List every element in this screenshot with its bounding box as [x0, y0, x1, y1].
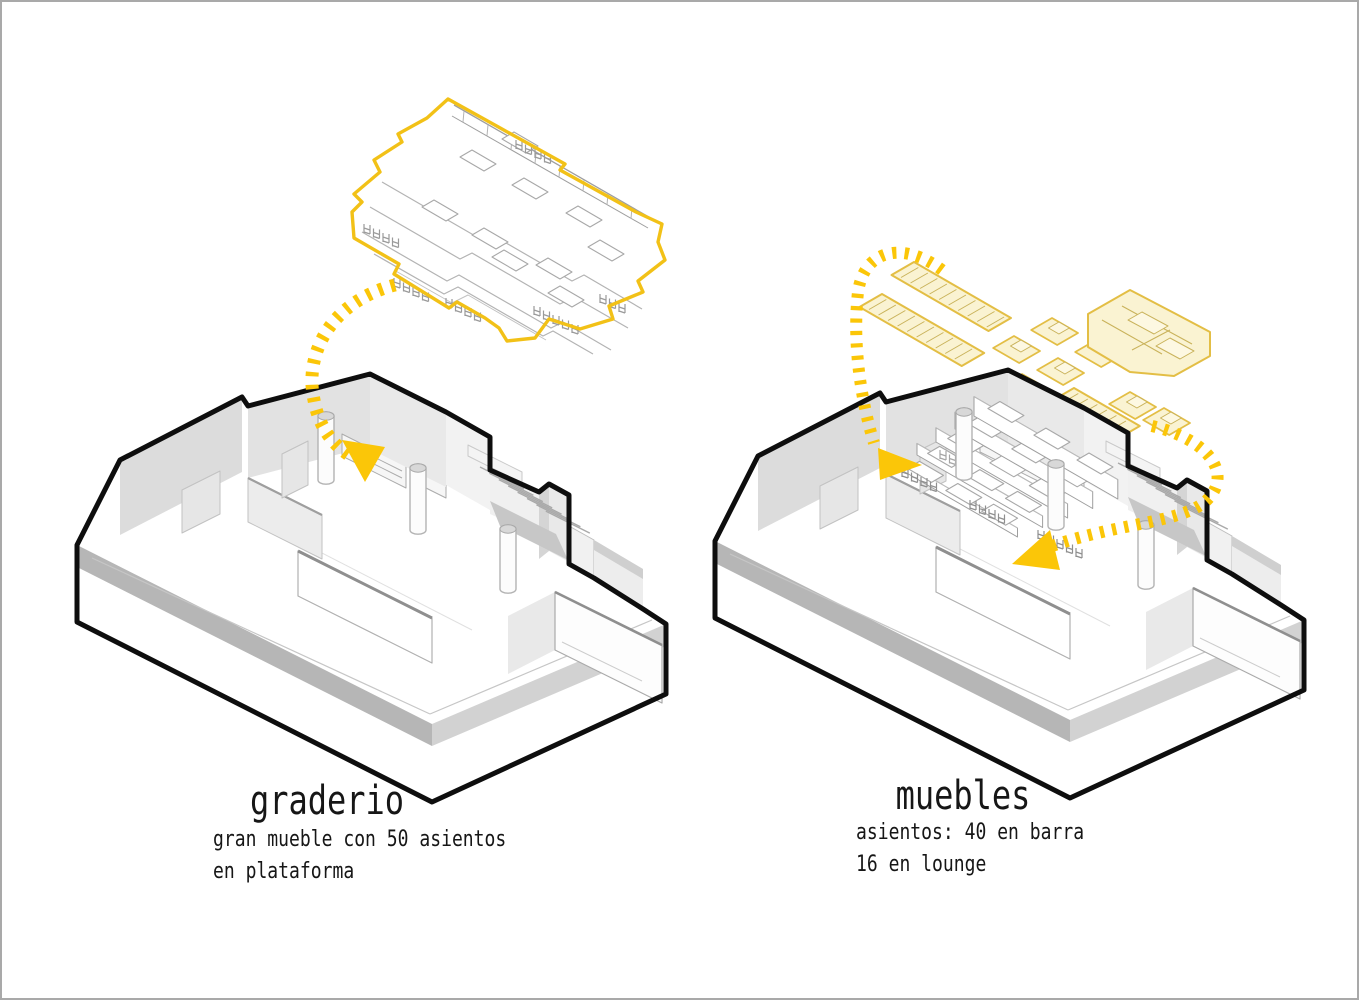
- graderio-caption-line-1: gran mueble con 50 asientos: [213, 824, 506, 856]
- diagram-page: graderio gran mueble con 50 asientos en …: [0, 0, 1359, 1000]
- graderio-caption: gran mueble con 50 asientos en plataform…: [213, 824, 506, 888]
- floating-graderio-furniture: [352, 99, 665, 354]
- graderio-caption-line-2: en plataforma: [213, 856, 506, 888]
- muebles-caption-line-2: 16 en lounge: [856, 849, 1084, 881]
- graderio-title: graderio: [207, 778, 447, 824]
- muebles-title: muebles: [843, 773, 1083, 819]
- muebles-caption-line-1: asientos: 40 en barra: [856, 817, 1084, 849]
- building-graderio: [77, 374, 666, 802]
- building-muebles: [715, 370, 1304, 798]
- muebles-caption: asientos: 40 en barra 16 en lounge: [856, 817, 1084, 881]
- axonometric-diagram-canvas: [2, 2, 1359, 1000]
